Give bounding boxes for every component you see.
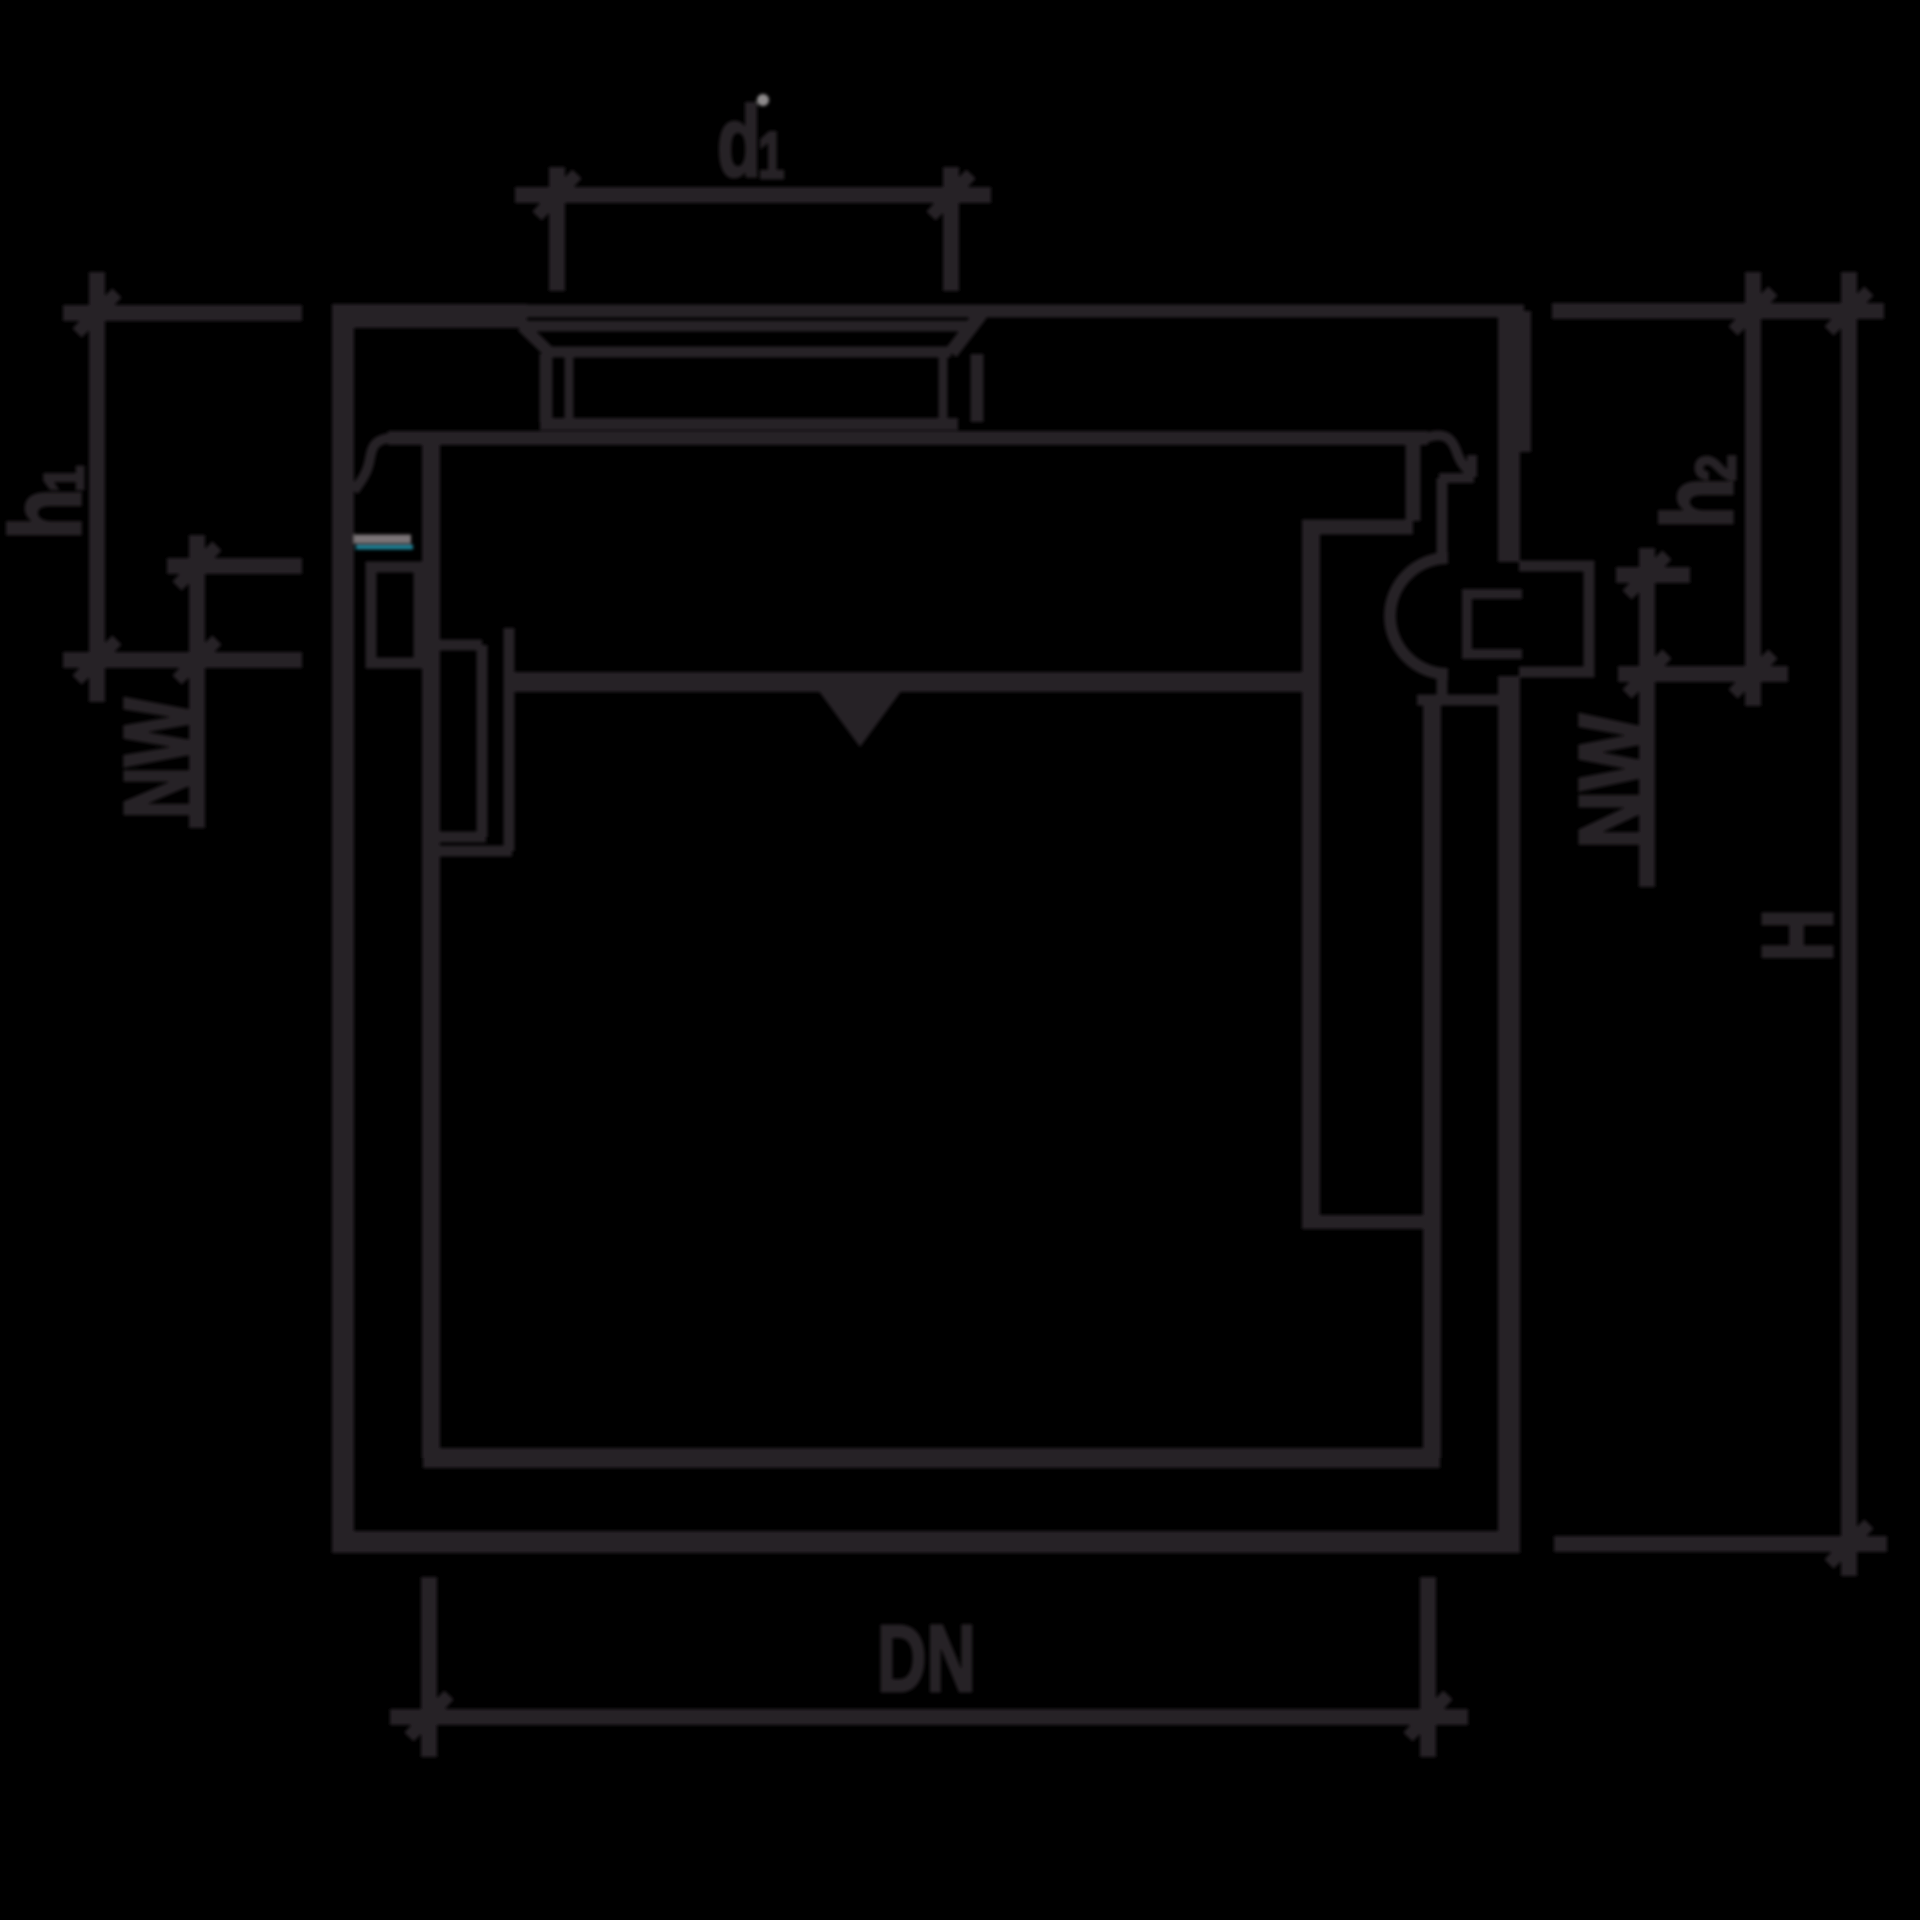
svg-text:DN: DN [877,1605,976,1712]
svg-text:1: 1 [758,119,784,192]
svg-text:h: h [0,488,102,540]
svg-text:d: d [717,86,761,197]
svg-text:H: H [1741,909,1854,962]
svg-text:2: 2 [1685,455,1747,481]
svg-text:h: h [1641,477,1753,529]
svg-text:NW: NW [1559,713,1668,849]
svg-text:NW: NW [105,698,214,819]
svg-text:1: 1 [33,466,95,492]
